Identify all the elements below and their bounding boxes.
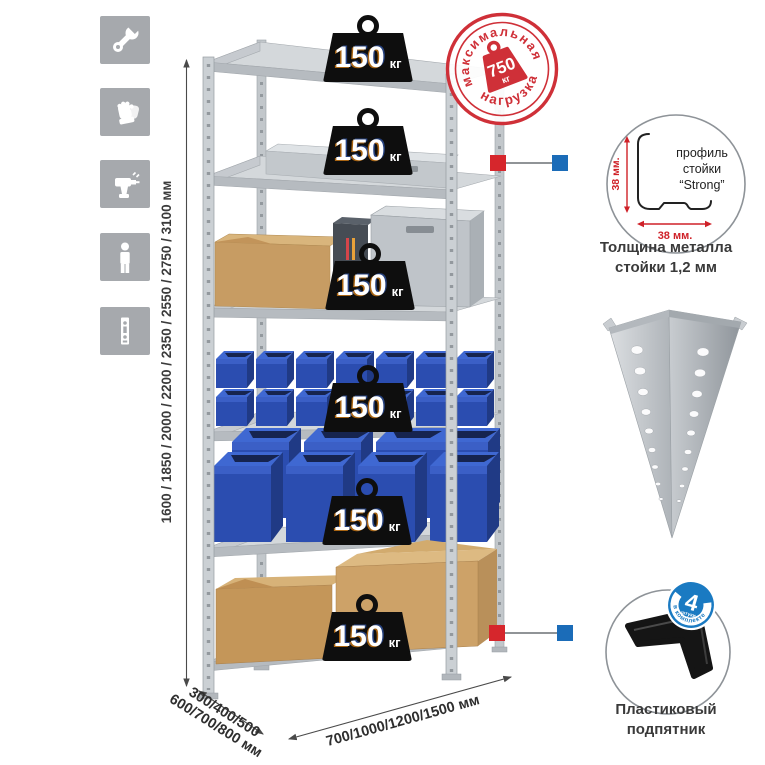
- profile-caption-line1: Толщина металла: [584, 238, 748, 258]
- connector-blue-square-top: [552, 155, 568, 171]
- shelf-load-badge-2: 150кг: [323, 108, 413, 175]
- wrench-icon: [108, 23, 142, 57]
- person-icon: [108, 240, 142, 274]
- width-dimension-label: 700/1000/1200/1500 мм: [324, 692, 481, 750]
- shelf-load-badge-6: 150кг: [322, 594, 412, 661]
- post-feature-tile: [100, 307, 150, 355]
- connector-red-square-bottom: [489, 625, 505, 641]
- load-unit: кг: [390, 407, 402, 420]
- load-unit: кг: [392, 285, 404, 298]
- profile-label-3: “Strong”: [679, 178, 724, 192]
- profile-caption-line2: стойки 1,2 мм: [584, 258, 748, 278]
- gloves-icon: [108, 95, 142, 129]
- post-profile-icon: [108, 314, 142, 348]
- foot-caption: Пластиковый подпятник: [584, 700, 748, 739]
- drill-feature-tile: [100, 160, 150, 208]
- load-unit: кг: [390, 57, 402, 70]
- load-unit: кг: [390, 150, 402, 163]
- profile-dim-vertical: 38 мм.: [610, 157, 622, 190]
- foot-caption-line1: Пластиковый: [584, 700, 748, 720]
- shelf-load-badge-4: 150кг: [323, 365, 413, 432]
- drill-icon: [108, 167, 142, 201]
- load-unit: кг: [389, 520, 401, 533]
- shelf-load-badge-1: 150кг: [323, 15, 413, 82]
- load-value: 150: [335, 393, 385, 423]
- profile-caption: Толщина металла стойки 1,2 мм: [584, 238, 748, 277]
- assembly-feature-tile: [100, 16, 150, 64]
- load-value: 150: [335, 136, 385, 166]
- profile-label-1: профиль: [676, 146, 728, 160]
- shelf-load-badge-5: 150кг: [322, 478, 412, 545]
- connector-blue-square-bottom: [557, 625, 573, 641]
- foot-caption-line2: подпятник: [584, 720, 748, 740]
- angle-post-image: [595, 298, 755, 543]
- shelf-load-badge-3: 150кг: [325, 243, 415, 310]
- gloves-feature-tile: [100, 88, 150, 136]
- connector-red-square-top: [490, 155, 506, 171]
- infographic-stage: 1600 / 1850 / 2000 / 2200 / 2350 / 2550 …: [0, 0, 765, 765]
- load-value: 150: [335, 43, 385, 73]
- profile-label-2: стойки: [683, 162, 721, 176]
- max-load-stamp: максимальная нагрузка 750 кг: [443, 10, 561, 128]
- person-feature-tile: [100, 233, 150, 281]
- load-value: 150: [337, 271, 387, 301]
- load-unit: кг: [389, 636, 401, 649]
- height-dimension-label: 1600 / 1850 / 2000 / 2200 / 2350 / 2550 …: [159, 181, 174, 524]
- load-value: 150: [334, 622, 384, 652]
- load-value: 150: [334, 506, 384, 536]
